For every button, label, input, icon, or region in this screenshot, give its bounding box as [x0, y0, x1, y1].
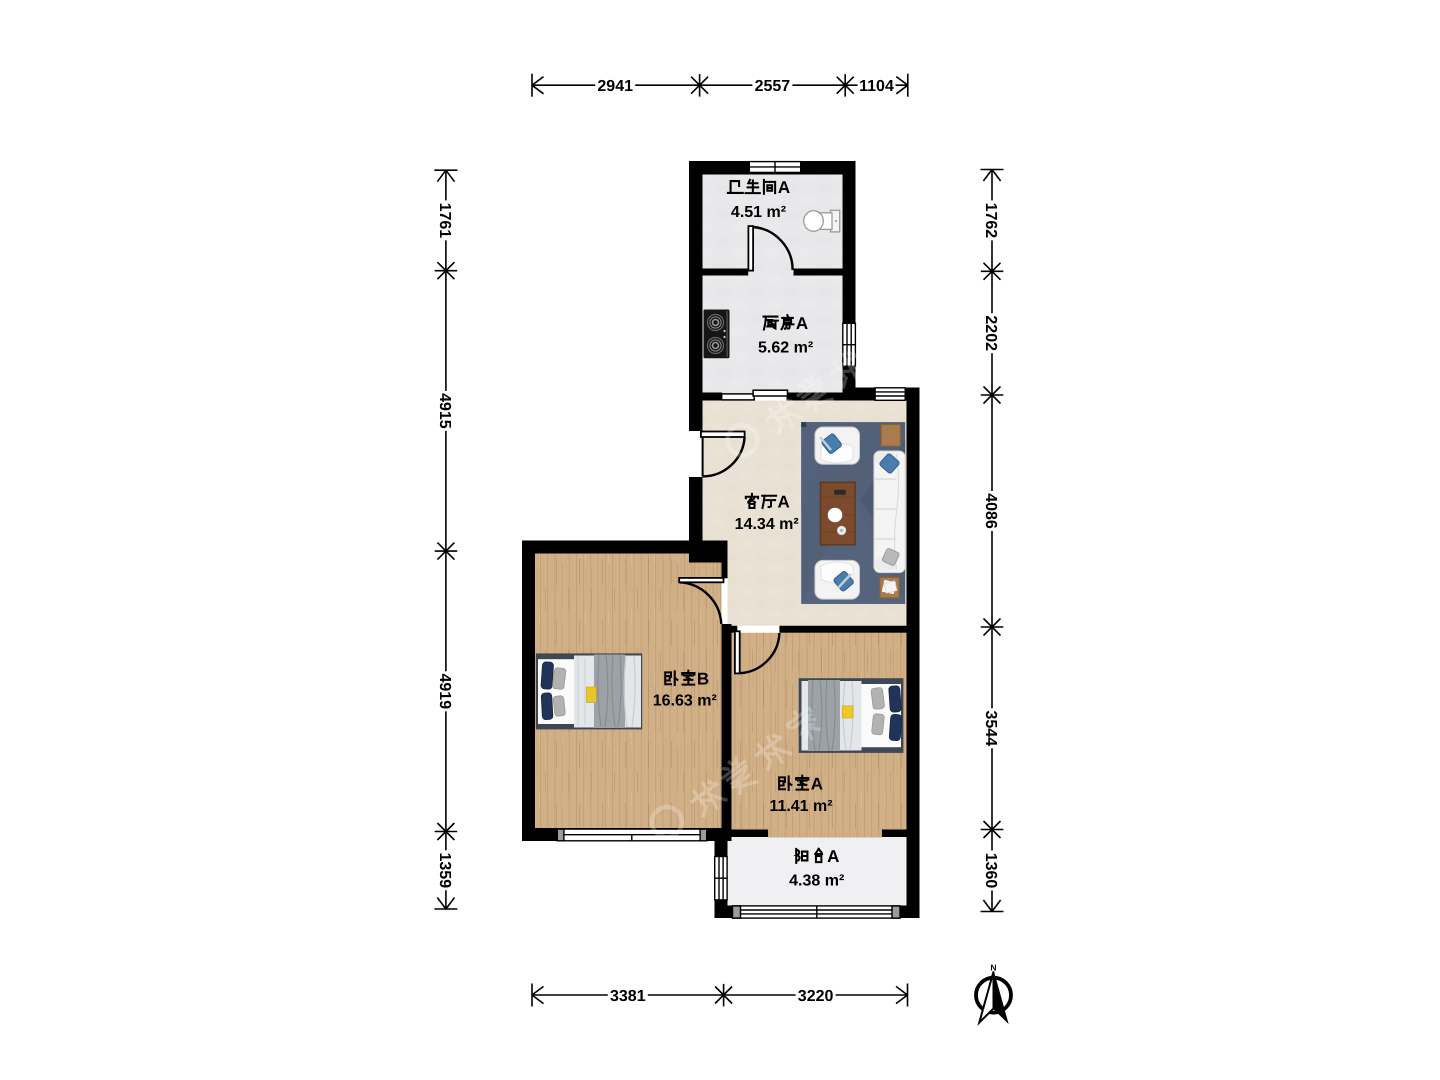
svg-text:2941: 2941 — [597, 78, 633, 95]
svg-text:3220: 3220 — [798, 988, 834, 1005]
svg-text:N: N — [990, 963, 996, 973]
svg-text:4.38 m²: 4.38 m² — [789, 873, 844, 890]
svg-text:4.51 m²: 4.51 m² — [731, 204, 786, 221]
svg-text:2557: 2557 — [755, 78, 791, 95]
svg-text:A: A — [777, 493, 789, 512]
svg-text:14.34 m²: 14.34 m² — [735, 516, 799, 533]
svg-text:3544: 3544 — [982, 711, 999, 747]
svg-text:1360: 1360 — [982, 853, 999, 889]
svg-text:4086: 4086 — [982, 493, 999, 529]
svg-text:11.41 m²: 11.41 m² — [769, 798, 832, 815]
svg-text:3381: 3381 — [610, 988, 646, 1005]
svg-text:A: A — [796, 314, 808, 333]
svg-text:1104: 1104 — [859, 78, 894, 95]
svg-text:A: A — [778, 178, 790, 197]
svg-text:4919: 4919 — [436, 674, 453, 710]
svg-text:1359: 1359 — [436, 853, 453, 889]
svg-text:A: A — [811, 775, 823, 794]
svg-text:1762: 1762 — [982, 203, 999, 239]
svg-text:2202: 2202 — [982, 315, 999, 351]
svg-text:1761: 1761 — [436, 203, 453, 239]
svg-text:5.62 m²: 5.62 m² — [758, 339, 813, 356]
svg-text:A: A — [827, 847, 839, 866]
svg-text:4915: 4915 — [436, 393, 453, 429]
svg-text:B: B — [697, 670, 709, 689]
svg-text:16.63 m²: 16.63 m² — [653, 693, 717, 710]
